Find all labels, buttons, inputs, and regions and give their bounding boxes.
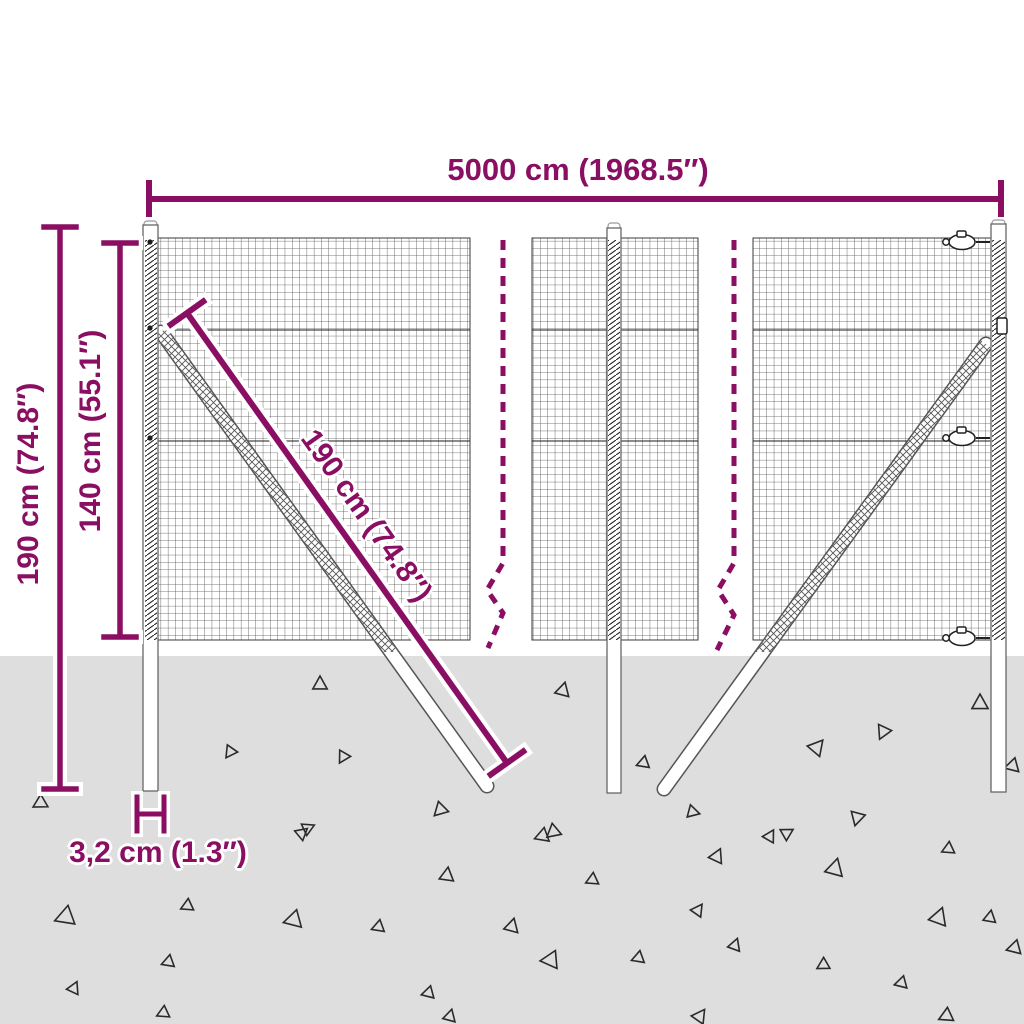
panel-break-line-right bbox=[717, 240, 734, 650]
total-width-label: 5000 cm (1968.5″) bbox=[447, 152, 708, 188]
fence-dimension-diagram: 5000 cm (1968.5″) 190 cm (74.8″) 140 cm … bbox=[0, 0, 1024, 1024]
mesh-height-label: 140 cm (55.1″) bbox=[74, 330, 108, 533]
post-middle bbox=[607, 223, 621, 793]
total-height-label: 190 cm (74.8″) bbox=[12, 383, 46, 586]
post-left bbox=[143, 221, 158, 791]
panel-break-line-left bbox=[487, 240, 503, 648]
dim-mesh-height bbox=[104, 243, 136, 637]
post-right bbox=[991, 220, 1007, 792]
post-thickness-label: 3,2 cm (1.3″) bbox=[69, 836, 247, 870]
